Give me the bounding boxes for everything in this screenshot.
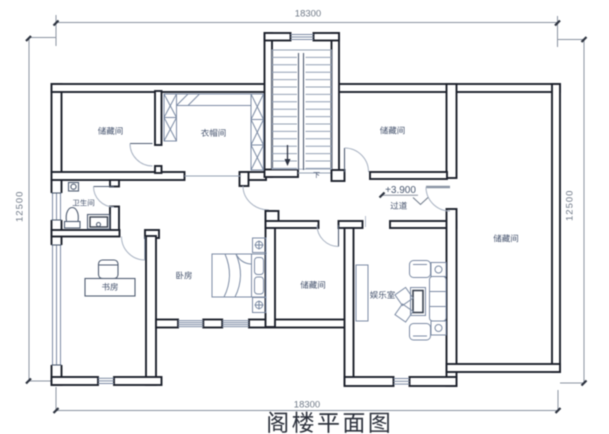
svg-text:12500: 12500 xyxy=(15,191,26,222)
svg-text:12500: 12500 xyxy=(565,190,576,221)
svg-text:18300: 18300 xyxy=(295,9,321,20)
svg-text:+3.900: +3.900 xyxy=(385,185,416,196)
svg-text:18300: 18300 xyxy=(294,400,320,411)
